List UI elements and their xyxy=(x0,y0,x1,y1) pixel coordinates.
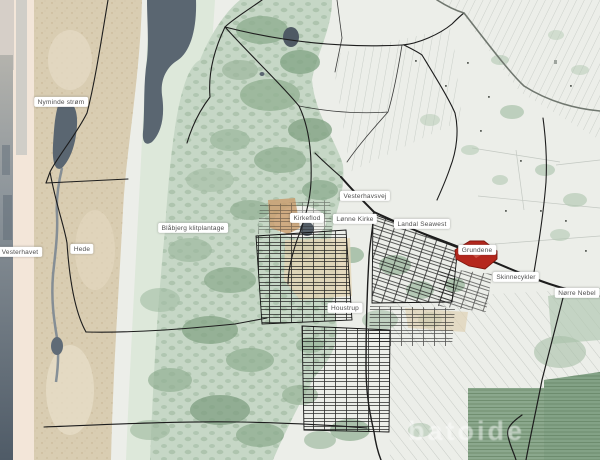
map-canvas xyxy=(0,0,600,460)
map-viewport[interactable]: Nyminde strømVesterhavetHedeBlåbjerg kli… xyxy=(0,0,600,460)
watermark: batoide xyxy=(408,416,525,447)
